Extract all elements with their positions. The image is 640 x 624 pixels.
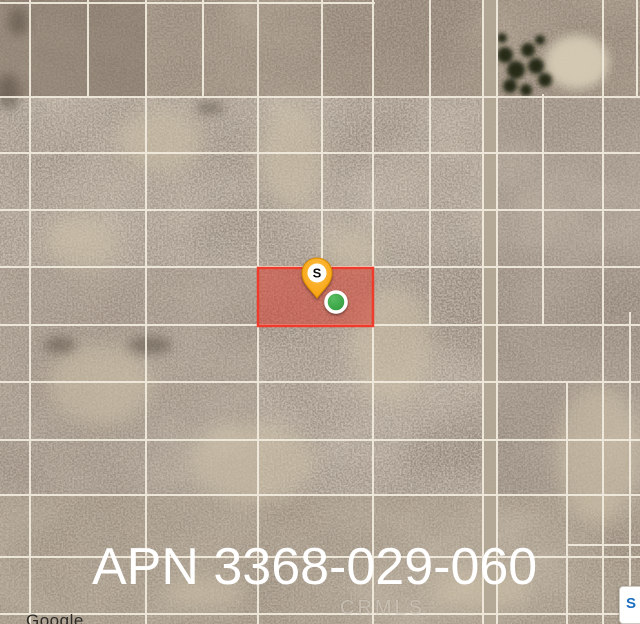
google-attribution: Google: [26, 611, 84, 624]
pin-letter: S: [313, 266, 322, 281]
satellite-map-canvas: S: [0, 0, 640, 624]
crmls-watermark: CRMLS: [340, 597, 425, 620]
road: [482, 0, 498, 624]
listing-logo-letter: S: [626, 595, 636, 612]
location-dot[interactable]: [326, 292, 346, 312]
apn-label: APN 3368-029-060: [92, 537, 537, 597]
listing-logo-badge: S: [619, 586, 640, 624]
satellite-map[interactable]: S APN 3368-029-060 CRMLS Google S: [0, 0, 640, 624]
